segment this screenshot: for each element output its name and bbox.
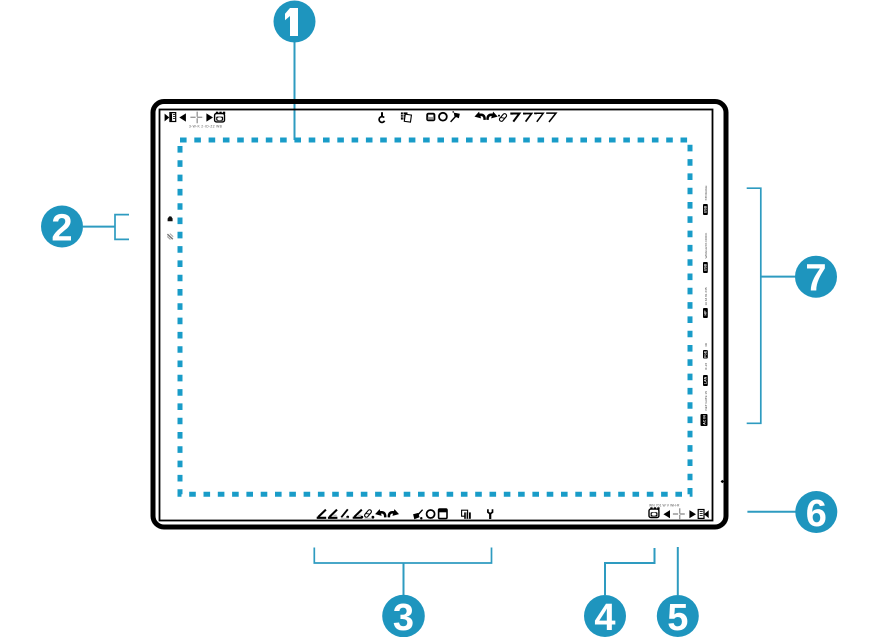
svg-text:PoE: PoE: [704, 350, 708, 358]
svg-text:AC IN: AC IN: [702, 415, 706, 425]
svg-text:3: 3: [393, 597, 414, 637]
svg-text:16 63 81 235: 16 63 81 235: [704, 287, 708, 305]
svg-text:4: 4: [594, 597, 615, 637]
svg-text:3-W-K 2-ID-Z2 WB: 3-W-K 2-ID-Z2 WB: [189, 124, 223, 128]
svg-text:LAN: LAN: [704, 376, 708, 384]
svg-text:HP: HP: [704, 310, 708, 316]
svg-text:IF-22: IF-22: [704, 362, 708, 370]
svg-text:WIRELESS DOCK: WIRELESS DOCK: [704, 232, 708, 259]
svg-text:NET GATE 15: NET GATE 15: [704, 391, 708, 411]
svg-text:STORAGE: STORAGE: [704, 185, 708, 200]
svg-text:7: 7: [805, 258, 826, 300]
svg-text:WN 701 W V WH-R: WN 701 W V WH-R: [649, 503, 680, 507]
svg-text:5: 5: [667, 597, 688, 637]
svg-text:USB: USB: [704, 263, 708, 271]
svg-text:6: 6: [806, 493, 827, 535]
svg-text:USB: USB: [704, 205, 708, 213]
svg-text:2: 2: [51, 207, 72, 249]
